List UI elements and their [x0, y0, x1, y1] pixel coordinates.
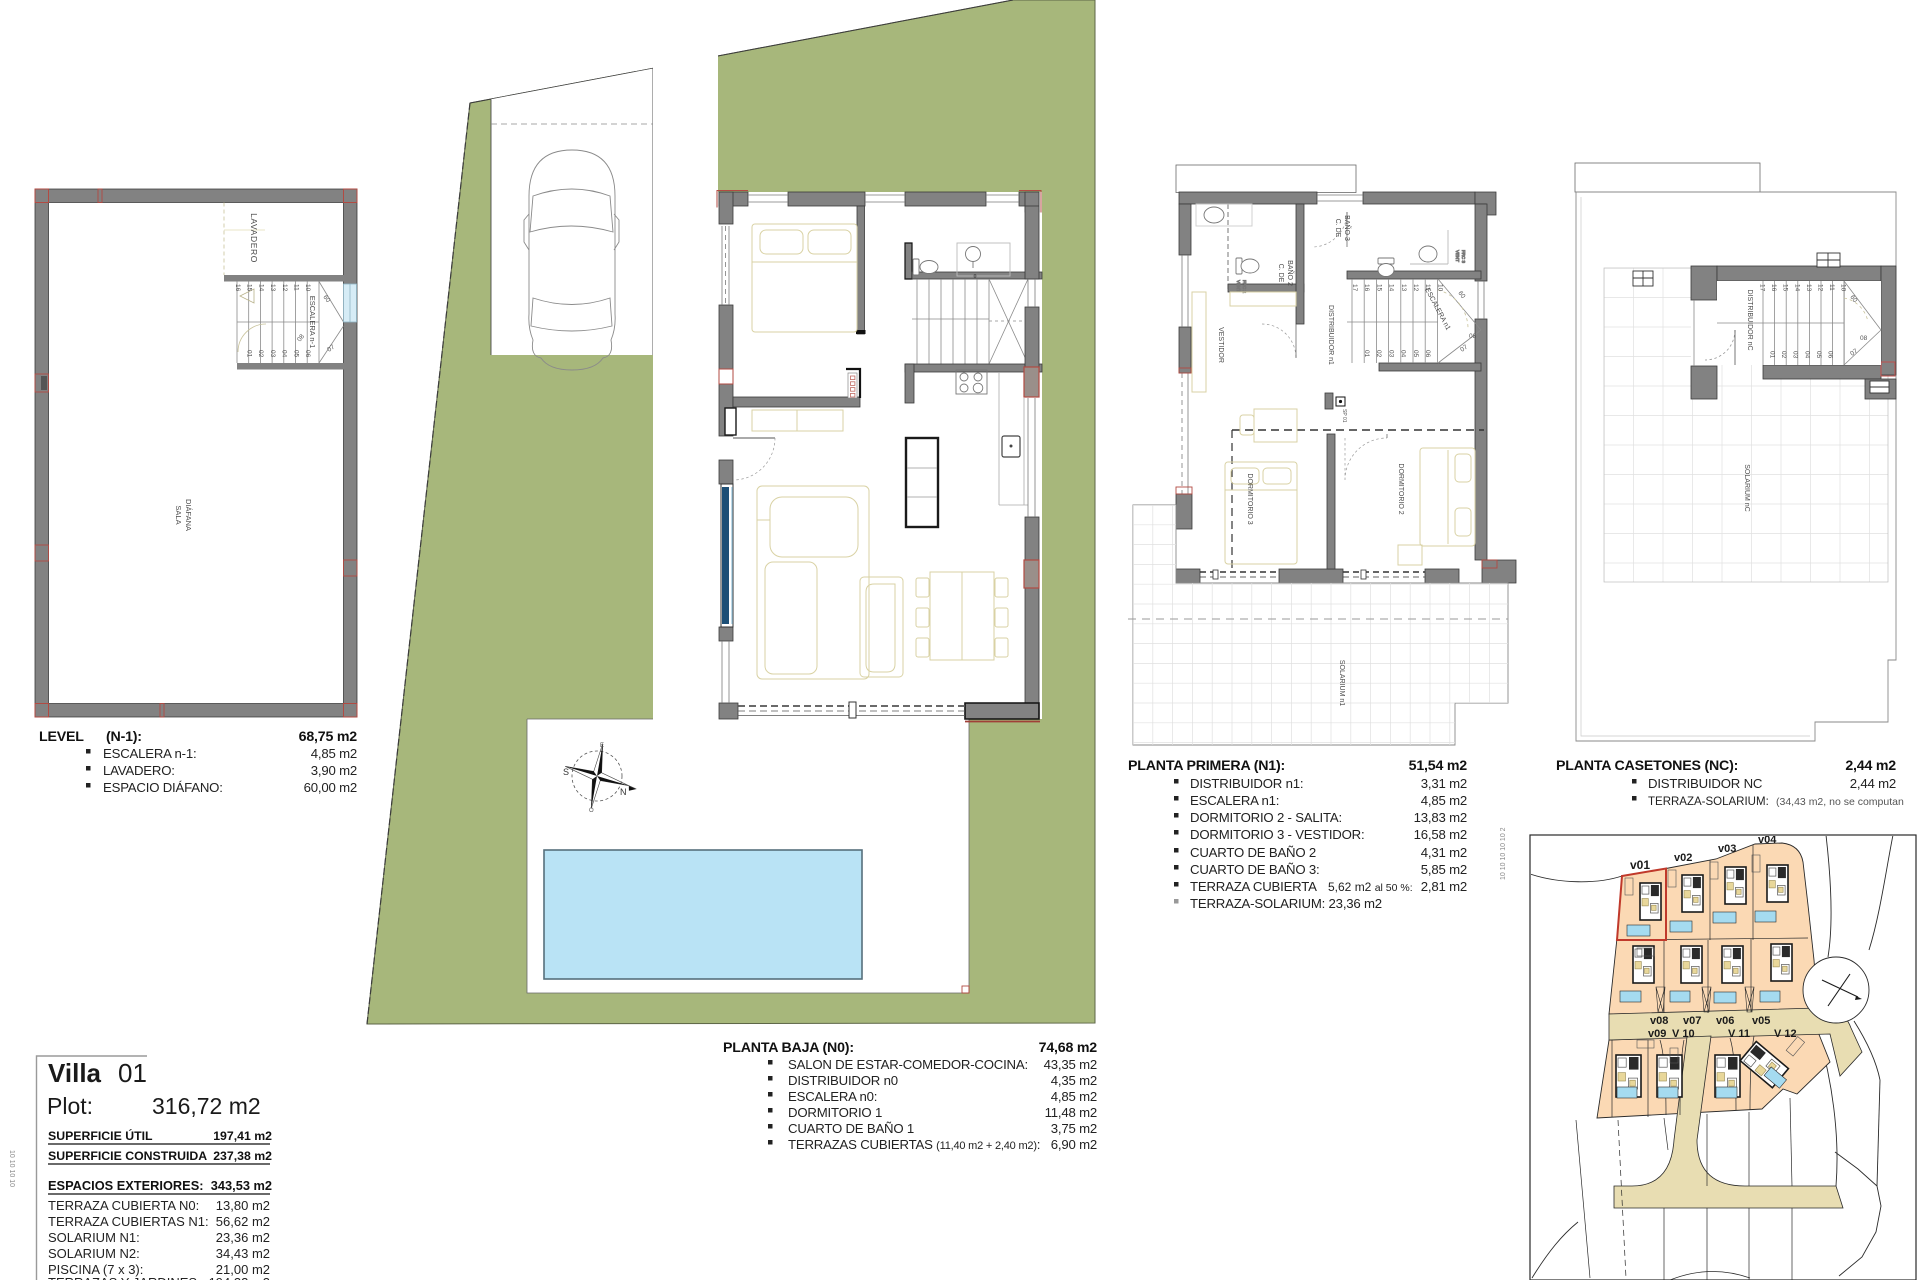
svg-text:4,85 m2: 4,85 m2	[1421, 793, 1467, 808]
svg-text:02: 02	[1780, 351, 1787, 359]
svg-text:DISTRIBUIDOR NC: DISTRIBUIDOR NC	[1648, 776, 1763, 791]
svg-text:13: 13	[1400, 284, 1407, 292]
svg-text:10: 10	[1840, 284, 1847, 292]
svg-text:v09: v09	[1648, 1028, 1666, 1040]
svg-text:O: O	[589, 808, 594, 814]
svg-text:6,90 m2: 6,90 m2	[1051, 1137, 1097, 1152]
svg-text:SOLARIUM n1: SOLARIUM n1	[1338, 660, 1345, 706]
svg-text:15: 15	[1375, 284, 1382, 292]
svg-text:v08: v08	[1650, 1015, 1668, 1027]
svg-text:BAÑO 2: BAÑO 2	[1286, 260, 1295, 286]
svg-text:03: 03	[1792, 351, 1799, 359]
svg-text:TERRAZA CUBIERTA N0:: TERRAZA CUBIERTA N0:	[48, 1198, 199, 1213]
svg-text:12: 12	[1412, 284, 1419, 292]
svg-text:01: 01	[1769, 351, 1776, 359]
svg-text:LEVEL: LEVEL	[39, 729, 84, 745]
svg-text:3,75 m2: 3,75 m2	[1051, 1121, 1097, 1136]
svg-text:v03: v03	[1718, 843, 1736, 855]
svg-text:01: 01	[118, 1058, 147, 1088]
svg-text:DORMITORIO 2 - SALITA:: DORMITORIO 2 - SALITA:	[1190, 810, 1342, 825]
svg-text:V 10: V 10	[1672, 1028, 1695, 1040]
svg-text:DISTRIBUIDOR n1: DISTRIBUIDOR n1	[1327, 305, 1334, 365]
svg-text:FRC 3: FRC 3	[1461, 250, 1466, 263]
svg-text:5,85 m2: 5,85 m2	[1421, 862, 1467, 877]
svg-text:DISTRIBUIDOR n1:: DISTRIBUIDOR n1:	[1190, 776, 1303, 791]
svg-text:13: 13	[1805, 284, 1812, 292]
svg-text:56,62 m2: 56,62 m2	[216, 1214, 270, 1229]
svg-text:BAÑO 3: BAÑO 3	[1343, 215, 1352, 241]
svg-text:TERRAZA-SOLARIUM:: TERRAZA-SOLARIUM:	[1648, 796, 1769, 808]
svg-text:2,81 m2: 2,81 m2	[1421, 879, 1467, 894]
svg-text:ESCALERA n1:: ESCALERA n1:	[1190, 793, 1279, 808]
svg-text:06: 06	[304, 350, 311, 358]
svg-text:SALA: SALA	[174, 505, 183, 524]
svg-text:CUARTO DE BAÑO 3:: CUARTO DE BAÑO 3:	[1190, 862, 1320, 877]
svg-text:ESCALERA n-1:: ESCALERA n-1:	[103, 746, 196, 761]
svg-text:LAVADERO: LAVADERO	[249, 213, 259, 263]
svg-text:13,83 m2: 13,83 m2	[1414, 810, 1467, 825]
svg-text:02: 02	[257, 350, 264, 358]
svg-text:01: 01	[1363, 350, 1370, 358]
svg-text:FRC 2: FRC 2	[1242, 280, 1247, 293]
svg-text:23,36 m2: 23,36 m2	[216, 1230, 270, 1245]
svg-text:14: 14	[1793, 284, 1800, 292]
svg-text:DISTRIBUIDOR n0: DISTRIBUIDOR n0	[788, 1073, 898, 1088]
svg-text:17: 17	[1351, 284, 1358, 292]
svg-text:05: 05	[292, 350, 299, 358]
svg-text:06: 06	[1827, 351, 1834, 359]
svg-text:05: 05	[1815, 351, 1822, 359]
svg-text:V 12: V 12	[1774, 1028, 1797, 1040]
svg-text:E: E	[600, 743, 604, 749]
svg-text:Plot:: Plot:	[47, 1093, 93, 1119]
svg-text:SOLARIUM N1:: SOLARIUM N1:	[48, 1230, 140, 1245]
svg-text:CUARTO DE BAÑO 1: CUARTO DE BAÑO 1	[788, 1121, 914, 1136]
svg-text:14: 14	[257, 284, 264, 292]
svg-text:VENT: VENT	[1236, 280, 1241, 292]
svg-text:06: 06	[1424, 350, 1431, 358]
svg-text:v05: v05	[1752, 1015, 1770, 1027]
svg-text:(34,43 m2, no se computan: (34,43 m2, no se computan	[1776, 796, 1904, 808]
svg-text:3,31 m2: 3,31 m2	[1421, 776, 1467, 791]
svg-text:SP 01: SP 01	[1341, 409, 1347, 423]
svg-text:343,53 m2: 343,53 m2	[211, 1178, 272, 1193]
svg-text:51,54 m2: 51,54 m2	[1409, 758, 1468, 774]
svg-text:C. DE: C. DE	[1277, 264, 1284, 283]
svg-text:DORMITORIO 2: DORMITORIO 2	[1397, 463, 1404, 514]
svg-text:10: 10	[304, 284, 311, 292]
svg-text:DORMITORIO 1: DORMITORIO 1	[788, 1105, 882, 1120]
svg-text:16: 16	[1363, 284, 1370, 292]
svg-text:SOLARIUM nC: SOLARIUM nC	[1743, 464, 1750, 511]
svg-text:02: 02	[1375, 350, 1382, 358]
svg-text:v07: v07	[1683, 1015, 1701, 1027]
svg-text:(N-1):: (N-1):	[106, 729, 142, 745]
svg-text:4,85 m2: 4,85 m2	[311, 746, 357, 761]
svg-text:07: 07	[1459, 344, 1469, 354]
svg-text:DORMITORIO 3: DORMITORIO 3	[1246, 473, 1253, 524]
svg-text:09: 09	[1457, 289, 1467, 299]
svg-text:194,32 m2: 194,32 m2	[209, 1275, 270, 1280]
svg-text:04: 04	[281, 350, 288, 358]
svg-text:68,75 m2: 68,75 m2	[299, 729, 358, 745]
svg-text:v06: v06	[1716, 1015, 1734, 1027]
svg-text:v02: v02	[1674, 852, 1692, 864]
svg-text:237,38 m2: 237,38 m2	[213, 1149, 272, 1163]
svg-text:4,85 m2: 4,85 m2	[1051, 1089, 1097, 1104]
svg-text:07: 07	[326, 344, 336, 354]
svg-text:01: 01	[246, 350, 253, 358]
svg-text:SUPERFICIE CONSTRUIDA: SUPERFICIE CONSTRUIDA	[48, 1149, 207, 1163]
svg-text:ESCALERA n0:: ESCALERA n0:	[788, 1089, 877, 1104]
svg-text:TERRAZA-SOLARIUM: 23,36 m2: TERRAZA-SOLARIUM: 23,36 m2	[1190, 896, 1382, 911]
svg-text:04: 04	[1400, 350, 1407, 358]
svg-text:VENT: VENT	[1455, 250, 1460, 262]
svg-text:04: 04	[1803, 351, 1810, 359]
svg-text:C. DE: C. DE	[1334, 219, 1341, 238]
svg-text:11: 11	[1828, 284, 1835, 291]
svg-text:10 10 10 10: 10 10 10 10	[8, 1150, 15, 1187]
svg-text:TERRAZAS Y JARDINES:: TERRAZAS Y JARDINES:	[48, 1275, 201, 1280]
svg-text:4,31 m2: 4,31 m2	[1421, 845, 1467, 860]
svg-text:12: 12	[281, 284, 288, 292]
svg-text:PLANTA PRIMERA (N1):: PLANTA PRIMERA (N1):	[1128, 758, 1285, 774]
svg-text:DIÁFANA: DIÁFANA	[184, 499, 193, 531]
svg-text:TERRAZAS CUBIERTAS (11,40 m2 +: TERRAZAS CUBIERTAS (11,40 m2 + 2,40 m2):	[788, 1137, 1040, 1152]
svg-text:17: 17	[1759, 284, 1766, 292]
svg-text:SALON DE ESTAR-COMEDOR-COCINA:: SALON DE ESTAR-COMEDOR-COCINA:	[788, 1057, 1028, 1072]
svg-text:2,44 m2: 2,44 m2	[1850, 776, 1896, 791]
svg-text:ESPACIO DIÁFANO:: ESPACIO DIÁFANO:	[103, 780, 223, 795]
svg-text:S: S	[563, 767, 569, 777]
svg-text:TERRAZA CUBIERTA: TERRAZA CUBIERTA	[1190, 879, 1317, 894]
svg-text:316,72 m2: 316,72 m2	[152, 1093, 261, 1119]
svg-text:05: 05	[1412, 350, 1419, 358]
svg-text:08: 08	[296, 333, 306, 343]
svg-text:10: 10	[1436, 284, 1443, 292]
svg-text:03: 03	[1387, 350, 1394, 358]
svg-text:197,41 m2: 197,41 m2	[213, 1129, 272, 1143]
svg-text:CUARTO DE BAÑO 2: CUARTO DE BAÑO 2	[1190, 845, 1316, 860]
svg-text:5,62 m2 al 50 %:: 5,62 m2 al 50 %:	[1328, 880, 1413, 894]
svg-text:43,35 m2: 43,35 m2	[1044, 1057, 1097, 1072]
svg-text:V 11: V 11	[1728, 1028, 1750, 1040]
svg-text:14: 14	[1388, 284, 1395, 292]
svg-text:11: 11	[293, 284, 300, 291]
svg-text:16: 16	[1770, 284, 1777, 292]
svg-text:08: 08	[1860, 335, 1868, 342]
svg-text:60,00 m2: 60,00 m2	[304, 780, 357, 795]
svg-text:ESCALERA n-1: ESCALERA n-1	[308, 296, 317, 349]
svg-text:03: 03	[269, 350, 276, 358]
svg-text:34,43 m2: 34,43 m2	[216, 1246, 270, 1261]
svg-text:13,80 m2: 13,80 m2	[216, 1198, 270, 1213]
svg-text:PLANTA CASETONES (NC):: PLANTA CASETONES (NC):	[1556, 758, 1738, 774]
svg-text:08: 08	[1469, 333, 1477, 340]
svg-text:11,48 m2: 11,48 m2	[1045, 1105, 1097, 1120]
svg-text:PLANTA BAJA (N0):: PLANTA BAJA (N0):	[723, 1040, 854, 1056]
svg-text:2,44 m2: 2,44 m2	[1845, 758, 1896, 774]
svg-text:DORMITORIO 3 - VESTIDOR:: DORMITORIO 3 - VESTIDOR:	[1190, 827, 1364, 842]
svg-text:ESPACIOS EXTERIORES:: ESPACIOS EXTERIORES:	[48, 1178, 204, 1193]
svg-text:15: 15	[1782, 284, 1789, 292]
svg-text:N: N	[620, 787, 627, 797]
svg-text:74,68 m2: 74,68 m2	[1039, 1040, 1098, 1056]
svg-text:13: 13	[269, 284, 276, 292]
svg-text:LAVADERO:: LAVADERO:	[103, 763, 175, 778]
svg-text:10 10 10 10 10 2: 10 10 10 10 10 2	[1500, 827, 1507, 880]
svg-text:DISTRIBUIDOR nC: DISTRIBUIDOR nC	[1746, 289, 1753, 350]
svg-text:15: 15	[246, 284, 253, 292]
svg-text:TERRAZA CUBIERTAS N1:: TERRAZA CUBIERTAS N1:	[48, 1214, 209, 1229]
svg-text:Villa: Villa	[48, 1058, 102, 1088]
svg-text:4,35 m2: 4,35 m2	[1051, 1073, 1097, 1088]
svg-text:12: 12	[1817, 284, 1824, 292]
svg-text:VESTIDOR: VESTIDOR	[1217, 327, 1224, 363]
svg-text:v01: v01	[1630, 858, 1650, 872]
svg-text:16,58 m2: 16,58 m2	[1414, 827, 1467, 842]
svg-text:16: 16	[234, 284, 241, 292]
svg-text:SUPERFICIE ÚTIL: SUPERFICIE ÚTIL	[48, 1128, 153, 1143]
svg-text:3,90 m2: 3,90 m2	[311, 763, 357, 778]
svg-text:SOLARIUM N2:: SOLARIUM N2:	[48, 1246, 140, 1261]
